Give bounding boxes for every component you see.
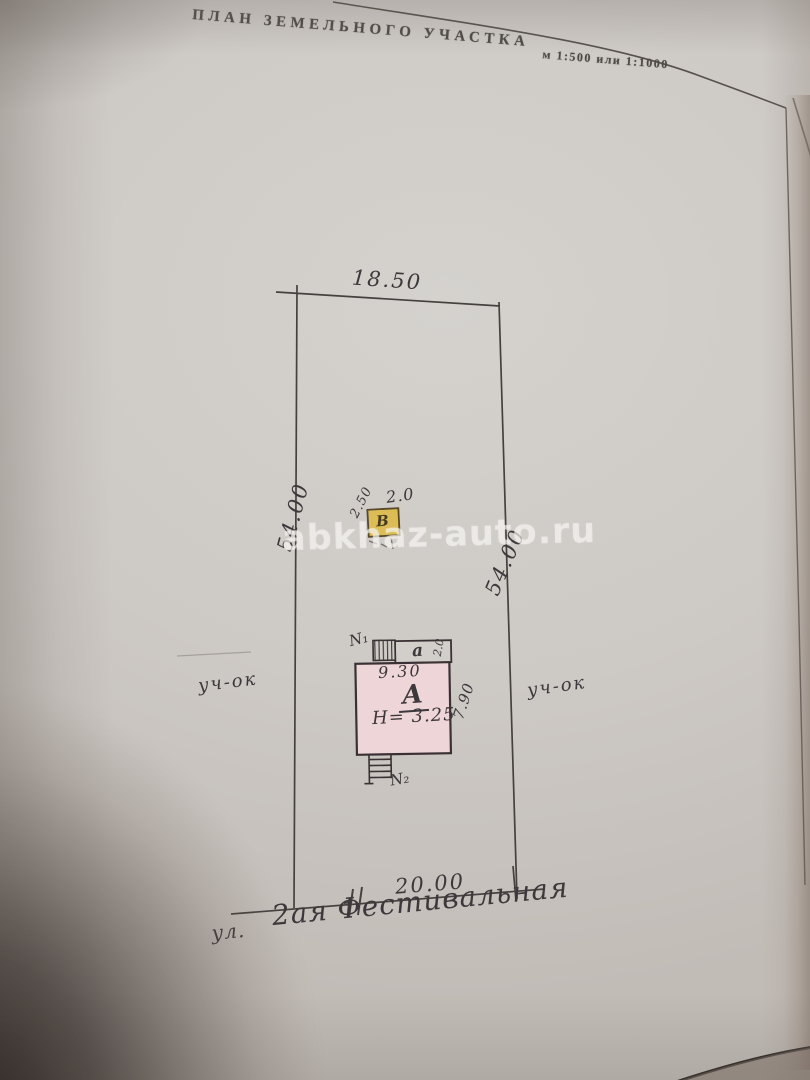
house-height-label: Н= 3.25 xyxy=(372,704,457,729)
plot-boundary-top xyxy=(276,292,500,306)
stairs-rect xyxy=(364,754,392,783)
shed-width-label: 2.0 xyxy=(385,484,416,507)
page-edge-line xyxy=(786,108,805,885)
dimension-top: 18.50 xyxy=(351,266,423,295)
plot-boundary-left xyxy=(294,285,297,908)
porch-hatch xyxy=(373,640,395,660)
stairs-number-label: N₂ xyxy=(389,768,411,789)
street-prefix: ул. xyxy=(210,918,246,945)
plot-boundary-right xyxy=(499,302,517,899)
photographed-land-plan: ПЛАН ЗЕМЕЛЬНОГО УЧАСТКА м 1:500 или 1:10… xyxy=(0,0,810,1080)
watermark-text: abkhaz-auto.ru xyxy=(282,511,597,559)
paper-corner-line xyxy=(793,98,810,160)
crease-line xyxy=(177,652,251,656)
plot-boundary xyxy=(231,285,545,914)
annex-letter: а xyxy=(411,641,423,662)
